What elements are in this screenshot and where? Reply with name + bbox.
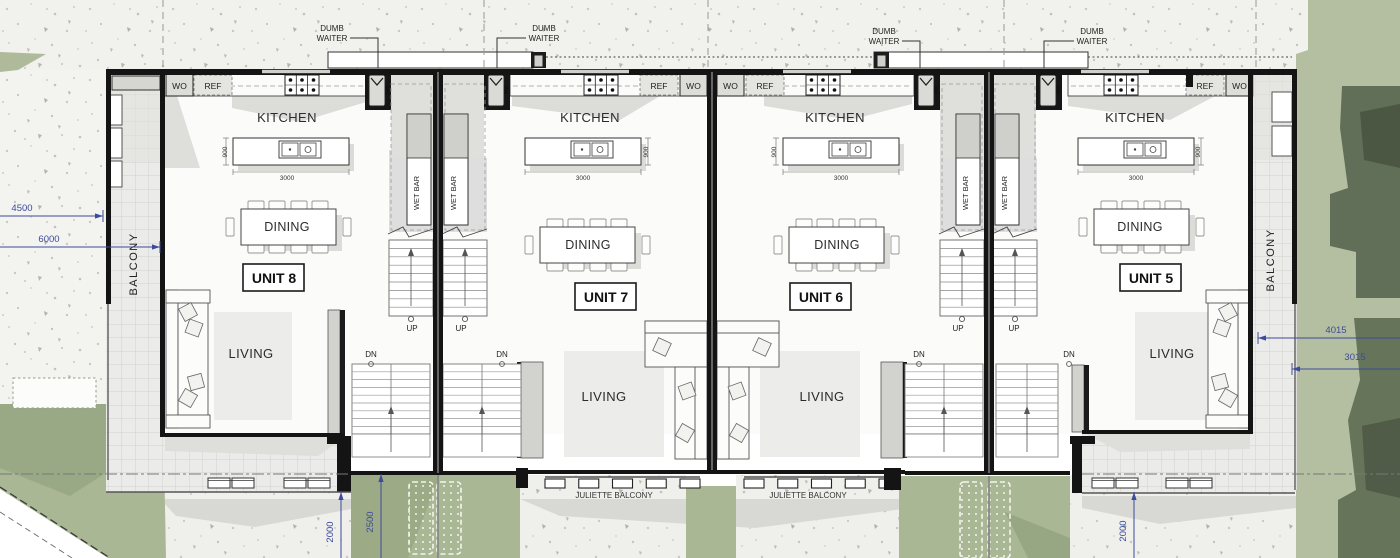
svg-text:DINING: DINING <box>565 238 611 252</box>
svg-text:LIVING: LIVING <box>581 389 626 404</box>
svg-text:UNIT 5: UNIT 5 <box>1129 270 1174 286</box>
svg-text:WO: WO <box>686 81 701 91</box>
svg-text:WO: WO <box>1232 81 1247 91</box>
svg-text:DINING: DINING <box>1117 220 1163 234</box>
svg-text:4500: 4500 <box>11 203 32 214</box>
svg-text:DN: DN <box>365 350 377 359</box>
svg-text:900: 900 <box>643 146 650 157</box>
svg-text:900: 900 <box>771 146 778 157</box>
svg-text:UP: UP <box>406 324 417 333</box>
svg-text:6000: 6000 <box>38 234 59 245</box>
svg-text:4015: 4015 <box>1325 325 1346 336</box>
svg-text:DN: DN <box>913 350 925 359</box>
svg-text:WET BAR: WET BAR <box>961 175 970 210</box>
svg-text:900: 900 <box>222 146 229 157</box>
svg-text:KITCHEN: KITCHEN <box>805 110 865 125</box>
svg-text:REF: REF <box>757 81 774 91</box>
svg-text:DUMB: DUMB <box>532 24 556 33</box>
svg-text:DN: DN <box>1063 350 1075 359</box>
svg-text:WET BAR: WET BAR <box>449 175 458 210</box>
svg-text:KITCHEN: KITCHEN <box>1105 110 1165 125</box>
svg-text:KITCHEN: KITCHEN <box>560 110 620 125</box>
svg-text:UNIT 7: UNIT 7 <box>584 289 629 305</box>
svg-text:WAITER: WAITER <box>869 37 900 46</box>
svg-text:3000: 3000 <box>1129 175 1144 182</box>
svg-text:WET BAR: WET BAR <box>1000 175 1009 210</box>
svg-text:WO: WO <box>723 81 738 91</box>
svg-text:900: 900 <box>1195 146 1202 157</box>
svg-text:LIVING: LIVING <box>228 346 273 361</box>
svg-text:WO: WO <box>172 81 187 91</box>
svg-text:DN: DN <box>496 350 508 359</box>
svg-text:BALCONY: BALCONY <box>1265 228 1277 291</box>
svg-text:3000: 3000 <box>834 175 849 182</box>
svg-text:DINING: DINING <box>814 238 860 252</box>
svg-text:3000: 3000 <box>280 175 295 182</box>
svg-text:LIVING: LIVING <box>799 389 844 404</box>
svg-text:DUMB: DUMB <box>1080 27 1104 36</box>
svg-text:DINING: DINING <box>264 220 310 234</box>
svg-text:UP: UP <box>1008 324 1019 333</box>
svg-text:UP: UP <box>455 324 466 333</box>
svg-text:UNIT 6: UNIT 6 <box>799 289 844 305</box>
svg-text:JULIETTE BALCONY: JULIETTE BALCONY <box>769 491 847 500</box>
svg-text:DUMB: DUMB <box>872 27 896 36</box>
svg-text:DUMB: DUMB <box>320 24 344 33</box>
svg-text:WAITER: WAITER <box>317 34 348 43</box>
svg-text:KITCHEN: KITCHEN <box>257 110 317 125</box>
svg-text:WAITER: WAITER <box>529 34 560 43</box>
svg-text:UP: UP <box>952 324 963 333</box>
svg-text:WET BAR: WET BAR <box>412 175 421 210</box>
svg-text:WAITER: WAITER <box>1077 37 1108 46</box>
svg-text:REF: REF <box>651 81 668 91</box>
svg-text:REF: REF <box>1197 81 1214 91</box>
svg-text:REF: REF <box>205 81 222 91</box>
svg-text:2000: 2000 <box>1118 520 1129 541</box>
svg-text:2500: 2500 <box>365 511 376 532</box>
svg-text:BALCONY: BALCONY <box>128 232 140 295</box>
svg-text:3000: 3000 <box>576 175 591 182</box>
svg-text:LIVING: LIVING <box>1149 346 1194 361</box>
svg-text:2000: 2000 <box>325 521 336 542</box>
svg-text:JULIETTE BALCONY: JULIETTE BALCONY <box>575 491 653 500</box>
svg-text:3015: 3015 <box>1344 352 1365 363</box>
svg-text:UNIT 8: UNIT 8 <box>252 270 297 286</box>
